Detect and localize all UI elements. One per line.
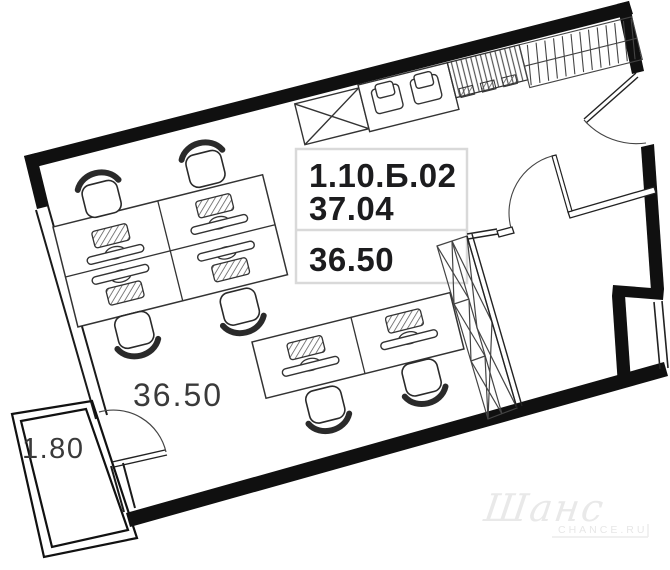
- balcony-area-label: 1.80: [22, 433, 84, 465]
- bathroom-walls: [497, 187, 656, 237]
- unit-code-label: 1.10.Б.02: [309, 157, 457, 194]
- office-chair-icon: [215, 286, 266, 338]
- desk-cluster-a: [42, 130, 299, 371]
- door-arc-icon: [509, 156, 552, 228]
- office-chair-icon: [179, 138, 230, 190]
- door-arc-icon: [584, 120, 646, 144]
- floor-plan: 1.10.Б.02 37.04 36.50 36.50 1.80 Шанс CH…: [0, 0, 670, 570]
- living-area-label: 36.50: [309, 241, 394, 278]
- office-chair-icon: [301, 384, 352, 436]
- total-area-label: 37.04: [309, 190, 394, 227]
- door-leaf: [552, 155, 572, 212]
- floor-plan-page: 1.10.Б.02 37.04 36.50 36.50 1.80 Шанс CH…: [0, 0, 670, 570]
- desk-cluster-b: [252, 293, 475, 444]
- balcony-outer-wall: [12, 401, 137, 557]
- watermark: Шанс CHANCE.RU: [480, 487, 648, 537]
- area-label-box: 1.10.Б.02 37.04 36.50: [296, 149, 467, 283]
- balcony-door: [99, 410, 167, 467]
- watermark-caption: CHANCE.RU: [558, 524, 647, 536]
- bathroom-door: [509, 155, 572, 228]
- room-area-label: 36.50: [133, 377, 223, 413]
- wall-right-top: [617, 1, 644, 74]
- balcony: [12, 401, 137, 557]
- notch-window-icon: [654, 301, 668, 369]
- entrance-door: [584, 73, 646, 144]
- wall-right-mid: [641, 144, 664, 291]
- hall-partition-wall: [467, 229, 522, 408]
- wall-notch-left: [612, 295, 631, 386]
- door-arc-icon: [99, 410, 166, 452]
